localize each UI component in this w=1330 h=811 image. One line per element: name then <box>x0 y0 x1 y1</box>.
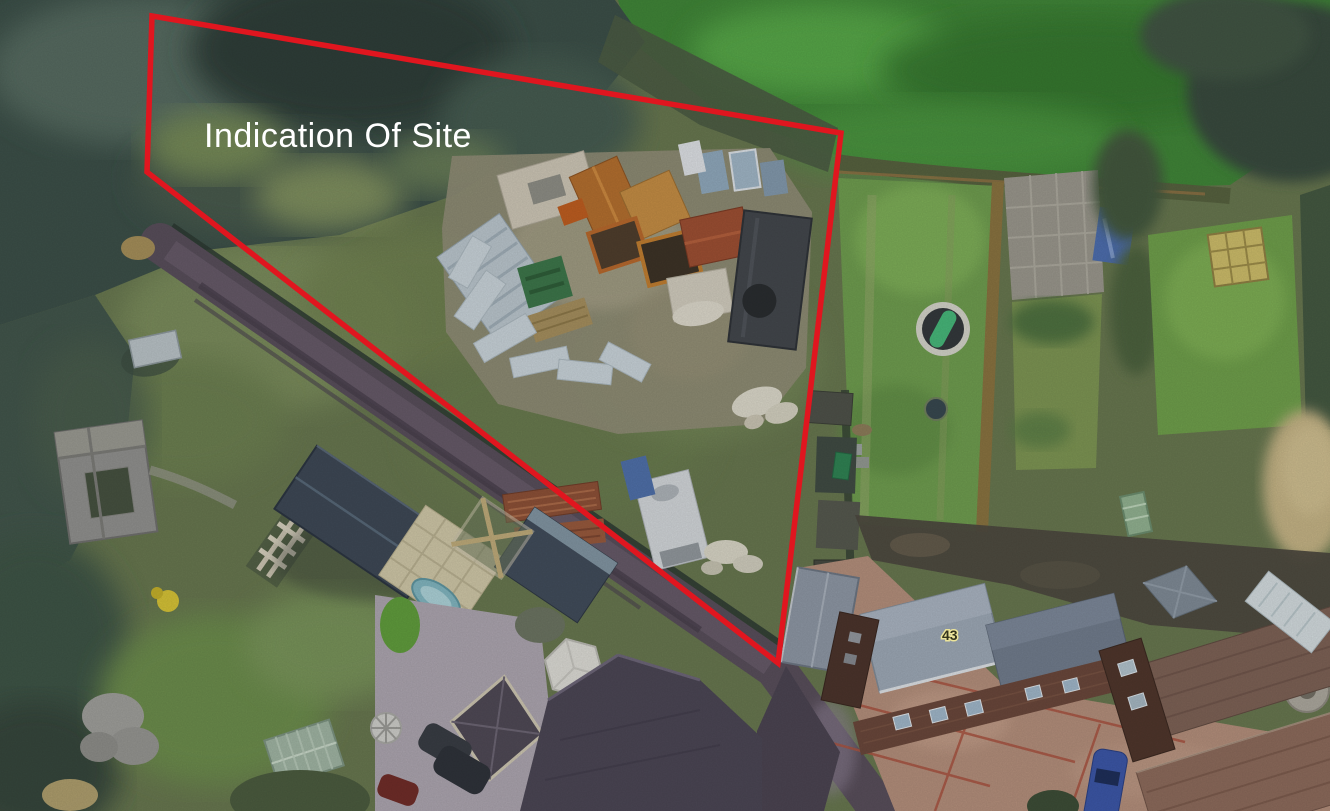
site-label: Indication Of Site <box>204 117 472 155</box>
photo-grain <box>0 0 1330 811</box>
house-number-label: 43 <box>942 627 958 643</box>
aerial-photo: Indication Of Site 43 <box>0 0 1330 811</box>
aerial-scene: Indication Of Site 43 <box>0 0 1330 811</box>
